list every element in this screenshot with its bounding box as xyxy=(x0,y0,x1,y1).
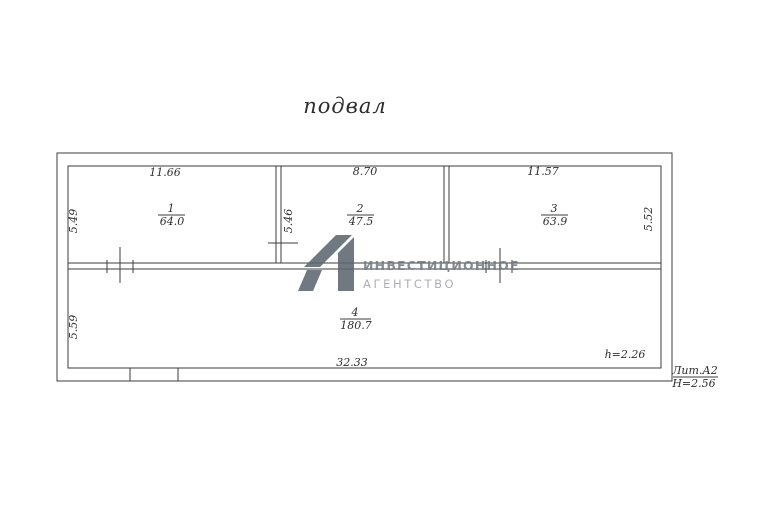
dim-room1-top: 11.66 xyxy=(149,166,181,179)
dim-room3-right: 5.52 xyxy=(642,207,655,232)
dim-room1-left: 5.49 xyxy=(67,209,80,234)
room3-number: 3 xyxy=(551,202,558,215)
dim-wall12: 5.46 xyxy=(282,209,295,234)
watermark-text: ИНВЕСТИЦИОННОЕ АГЕНТСТВО xyxy=(363,258,520,291)
room1-area: 64.0 xyxy=(160,215,185,228)
dim-room4-left: 5.59 xyxy=(67,315,80,340)
floor-plan-page: подвал 11.66 8.70 11.57 5.49 5.59 5.46 5… xyxy=(0,0,770,510)
room2-area: 47.5 xyxy=(348,215,374,228)
watermark-line2: АГЕНТСТВО xyxy=(363,277,520,291)
dim-bottom: 32.33 xyxy=(336,356,368,369)
inner-height-note: h=2.26 xyxy=(605,348,646,361)
outer-height-note: Н=2.56 xyxy=(671,377,715,390)
room4-area: 180.7 xyxy=(340,319,372,332)
logo-a-leg-stroke xyxy=(298,270,322,291)
room1-number: 1 xyxy=(168,202,175,215)
room4-number: 4 xyxy=(351,306,359,319)
dim-room3-top: 11.57 xyxy=(527,165,559,178)
wall-room1-room2 xyxy=(276,166,281,263)
watermark-line1: ИНВЕСТИЦИОННОЕ xyxy=(363,258,520,273)
wall-room2-room3 xyxy=(444,166,449,263)
liter-label: Лит.А2 xyxy=(671,364,718,377)
agency-a1-logo-icon xyxy=(298,233,362,292)
floor-plan-drawing: 11.66 8.70 11.57 5.49 5.59 5.46 5.52 32.… xyxy=(0,0,770,510)
dim-room2-top: 8.70 xyxy=(353,165,378,178)
room3-area: 63.9 xyxy=(543,215,568,228)
room2-number: 2 xyxy=(356,202,364,215)
